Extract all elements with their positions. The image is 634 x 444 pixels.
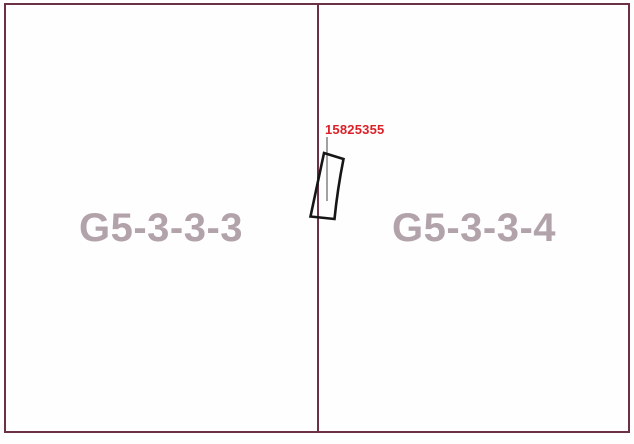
map-canvas: G5-3-3-3 G5-3-3-4 15825355 bbox=[0, 0, 634, 444]
feature-overlay bbox=[0, 0, 634, 444]
